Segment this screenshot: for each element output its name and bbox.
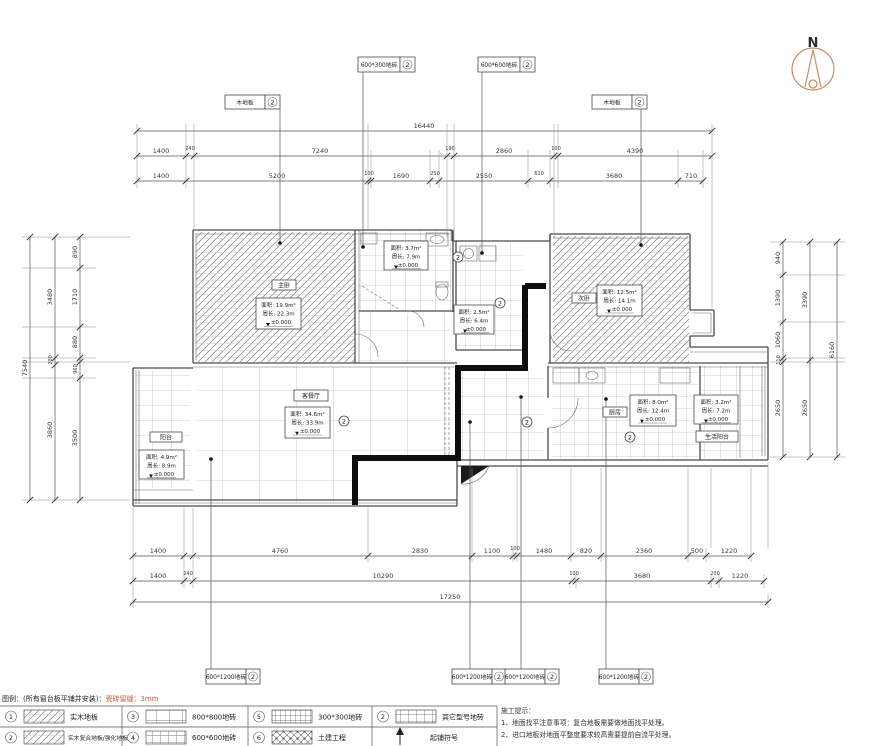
callout-tile-600x1200-b: 600*1200地砖 2 [452,669,506,684]
construction-notes: 施工提示： 1、地面找平注意事项：复合地板需要做地面找平处理。 2、进口地板对地… [501,706,675,739]
finish-marker: 2 [628,433,632,441]
callout-label: 600*300地砖 [361,61,398,69]
svg-text:4: 4 [131,734,135,742]
svg-text:3: 3 [131,713,135,721]
svg-text:600*600地砖: 600*600地砖 [192,733,236,742]
svg-text:实木复合地板/强化地板: 实木复合地板/强化地板 [68,734,128,742]
svg-text:2650: 2650 [774,400,782,417]
right-dimensions: 940 1390 1060 110 2650 3390 2650 6160 [770,239,845,460]
callout-wood-floor-left: 木地板 2 [225,95,280,109]
swatch-tile-300 [272,710,312,723]
svg-text:周长: 33.9m: 周长: 33.9m [291,419,323,427]
svg-text:4760: 4760 [272,547,289,555]
svg-text:240: 240 [185,146,195,152]
dim-top-total: 16440 [414,122,435,130]
svg-text:110: 110 [776,355,782,365]
svg-text:610: 610 [534,171,544,177]
svg-text:3390: 3390 [801,292,809,309]
svg-text:940: 940 [774,252,782,264]
dim-bottom-total: 17250 [440,593,461,601]
swatch-tile-other [396,710,436,723]
master-bedroom-wood-hatch [196,232,355,362]
svg-text:周长: 22.3m: 周长: 22.3m [262,310,294,318]
corridor-tile-grid [359,313,452,362]
svg-text:面积: 8.0m²: 面积: 8.0m² [638,399,669,406]
svg-text:2360: 2360 [636,547,653,555]
svg-text:±0.000: ±0.000 [398,263,419,269]
svg-text:面积: 3.7m²: 面积: 3.7m² [391,245,422,252]
north-arrow-icon: N [792,36,834,90]
svg-text:3480: 3480 [46,289,54,306]
svg-text:2550: 2550 [476,172,493,180]
svg-text:1400: 1400 [153,147,170,155]
svg-text:3860: 3860 [46,422,54,439]
living-tile-grid-lower [196,458,353,503]
svg-text:周长: 14.1m: 周长: 14.1m [603,297,635,305]
svg-text:100: 100 [569,571,579,577]
svg-text:300*300地砖: 300*300地砖 [318,713,362,722]
room-name-service: 生活阳台 [705,433,729,441]
notes-title: 施工提示： [501,706,535,715]
svg-text:土建工程: 土建工程 [318,733,346,742]
svg-text:1100: 1100 [484,547,501,555]
svg-text:2: 2 [637,98,641,106]
swatch-tile-800 [146,710,186,723]
svg-text:1390: 1390 [774,290,782,307]
svg-text:10290: 10290 [373,572,394,580]
svg-text:100: 100 [551,146,561,152]
swatch-wood-composite [24,731,64,744]
svg-text:面积: 34.6m²: 面积: 34.6m² [290,411,324,418]
svg-text:周长: 8.9m: 周长: 8.9m [147,462,176,470]
svg-text:2: 2 [381,713,385,721]
callout-tile-600x300: 600*300地砖 2 [358,57,415,72]
room-name-kitchen: 厨房 [609,409,621,417]
svg-text:1220: 1220 [732,572,749,580]
floorplan-page: N [0,0,879,746]
callout-label: 木地板 [603,99,621,107]
svg-text:2830: 2830 [412,547,429,555]
dim-left-total: 7540 [21,360,29,377]
svg-text:±0.000: ±0.000 [300,429,321,435]
svg-text:3680: 3680 [606,172,623,180]
svg-text:240: 240 [183,571,193,577]
svg-text:2: 2 [251,673,255,681]
svg-text:7240: 7240 [312,147,329,155]
svg-text:面积: 12.5m²: 面积: 12.5m² [602,289,636,296]
start-point-arrow-icon [396,727,404,745]
svg-text:960: 960 [73,364,79,374]
svg-text:2860: 2860 [496,147,513,155]
svg-text:800*800地砖: 800*800地砖 [192,713,236,722]
dim-right-total: 6160 [828,342,836,359]
svg-text:5200: 5200 [269,172,286,180]
finish-marker: 2 [342,417,346,425]
svg-text:2: 2 [644,673,648,681]
svg-text:710: 710 [685,172,697,180]
svg-text:600*1200地砖: 600*1200地砖 [599,673,640,681]
svg-text:2: 2 [550,673,554,681]
svg-text:起铺符号: 起铺符号 [430,733,458,742]
svg-text:±0.000: ±0.000 [645,417,666,423]
svg-text:5: 5 [257,713,261,721]
hall-tile-grid [458,370,544,459]
svg-text:1690: 1690 [393,172,410,180]
callout-tile-600x1200-d: 600*1200地砖 2 [599,669,653,684]
svg-text:880: 880 [71,336,79,348]
callout-label: 木地板 [236,99,254,107]
svg-text:600*1200地砖: 600*1200地砖 [206,673,247,681]
svg-text:1480: 1480 [536,547,553,555]
svg-text:面积: 2.5m²: 面积: 2.5m² [459,309,490,316]
svg-text:600*1200地砖: 600*1200地砖 [452,673,493,681]
svg-text:1220: 1220 [721,547,738,555]
swatch-rough [272,731,312,744]
svg-text:周长: 7.9m: 周长: 7.9m [392,253,421,261]
svg-text:±0.000: ±0.000 [466,327,487,333]
svg-text:周长: 7.2m: 周长: 7.2m [702,407,731,415]
floorplan-drawing: N [0,0,879,746]
svg-text:6: 6 [257,734,261,742]
callout-tile-600x1200-a: 600*1200地砖 2 [206,669,260,684]
svg-text:1710: 1710 [71,289,79,306]
svg-text:4390: 4390 [627,147,644,155]
svg-text:1400: 1400 [150,572,167,580]
svg-text:2: 2 [497,673,501,681]
svg-text:面积: 19.9m²: 面积: 19.9m² [261,302,295,309]
svg-text:1400: 1400 [153,172,170,180]
legend: 图例：(所有窗台板平铺并安装)：瓷砖留缝：3mm 1 实木地板 3 800*80… [0,694,675,746]
legend-row1: 1 实木地板 3 800*800地砖 5 300*300地砖 2 其它型号地砖 [6,710,485,723]
callout-label: 600*600地砖 [481,61,518,69]
svg-text:2: 2 [405,61,409,69]
left-dimensions: 890 1710 880 960 3500 3480 200 3860 7540 [21,234,130,503]
callout-wood-floor-right: 木地板 2 [592,95,647,109]
svg-text:600*1200地砖: 600*1200地砖 [505,673,546,681]
svg-text:3680: 3680 [634,572,651,580]
svg-text:500: 500 [691,547,703,555]
svg-text:890: 890 [71,246,79,258]
svg-text:2650: 2650 [801,400,809,417]
svg-text:200: 200 [710,571,720,577]
notes-line1: 1、地面找平注意事项：复合地板需要做地面找平处理。 [501,718,668,727]
svg-text:周长: 12.4m: 周长: 12.4m [637,407,669,415]
svg-text:100: 100 [364,171,374,177]
room-name-living: 客餐厅 [302,392,320,400]
svg-text:1400: 1400 [150,547,167,555]
svg-text:2: 2 [270,98,274,106]
room-name-balcony: 阳台 [160,434,172,442]
svg-text:±0.000: ±0.000 [271,320,292,326]
finish-marker: 2 [498,299,502,307]
swatch-tile-600 [146,731,186,744]
room-name-master: 主卧 [278,282,290,290]
svg-text:1060: 1060 [774,332,782,349]
room-name-second: 次卧 [578,295,590,303]
svg-text:±0.000: ±0.000 [708,417,729,423]
svg-text:周长: 6.4m: 周长: 6.4m [460,317,489,325]
finish-marker: 2 [525,418,529,426]
svg-text:200: 200 [48,355,54,365]
callout-tile-600x1200-c: 600*1200地砖 2 [505,669,559,684]
svg-text:面积: 4.9m²: 面积: 4.9m² [146,454,177,461]
svg-text:其它型号地砖: 其它型号地砖 [442,713,484,722]
legend-title: 图例：(所有窗台板平铺并安装)：瓷砖留缝：3mm [2,694,159,703]
svg-text:3500: 3500 [71,430,79,447]
svg-text:面积: 3.2m²: 面积: 3.2m² [701,399,732,406]
notes-line2: 2、进口地板对地面平整度要求较高需要提前自流平处理。 [501,730,675,739]
svg-text:±0.000: ±0.000 [612,307,633,313]
legend-title-red: 瓷砖留缝：3mm [105,694,158,703]
svg-text:2: 2 [9,734,13,742]
callout-tile-600x600: 600*600地砖 2 [478,57,535,72]
svg-text:±0.000: ±0.000 [154,472,175,478]
svg-text:1: 1 [9,713,13,721]
svg-text:190: 190 [445,146,455,152]
svg-text:820: 820 [580,547,592,555]
finish-marker: 2 [456,253,460,261]
svg-text:实木地板: 实木地板 [70,713,98,722]
svg-text:100: 100 [510,546,520,552]
svg-text:2: 2 [525,61,529,69]
swatch-wood [24,710,64,723]
legend-row2: 2 实木复合地板/强化地板 4 600*600地砖 6 土建工程 起铺符号 [6,727,459,745]
svg-text:250: 250 [430,171,440,177]
